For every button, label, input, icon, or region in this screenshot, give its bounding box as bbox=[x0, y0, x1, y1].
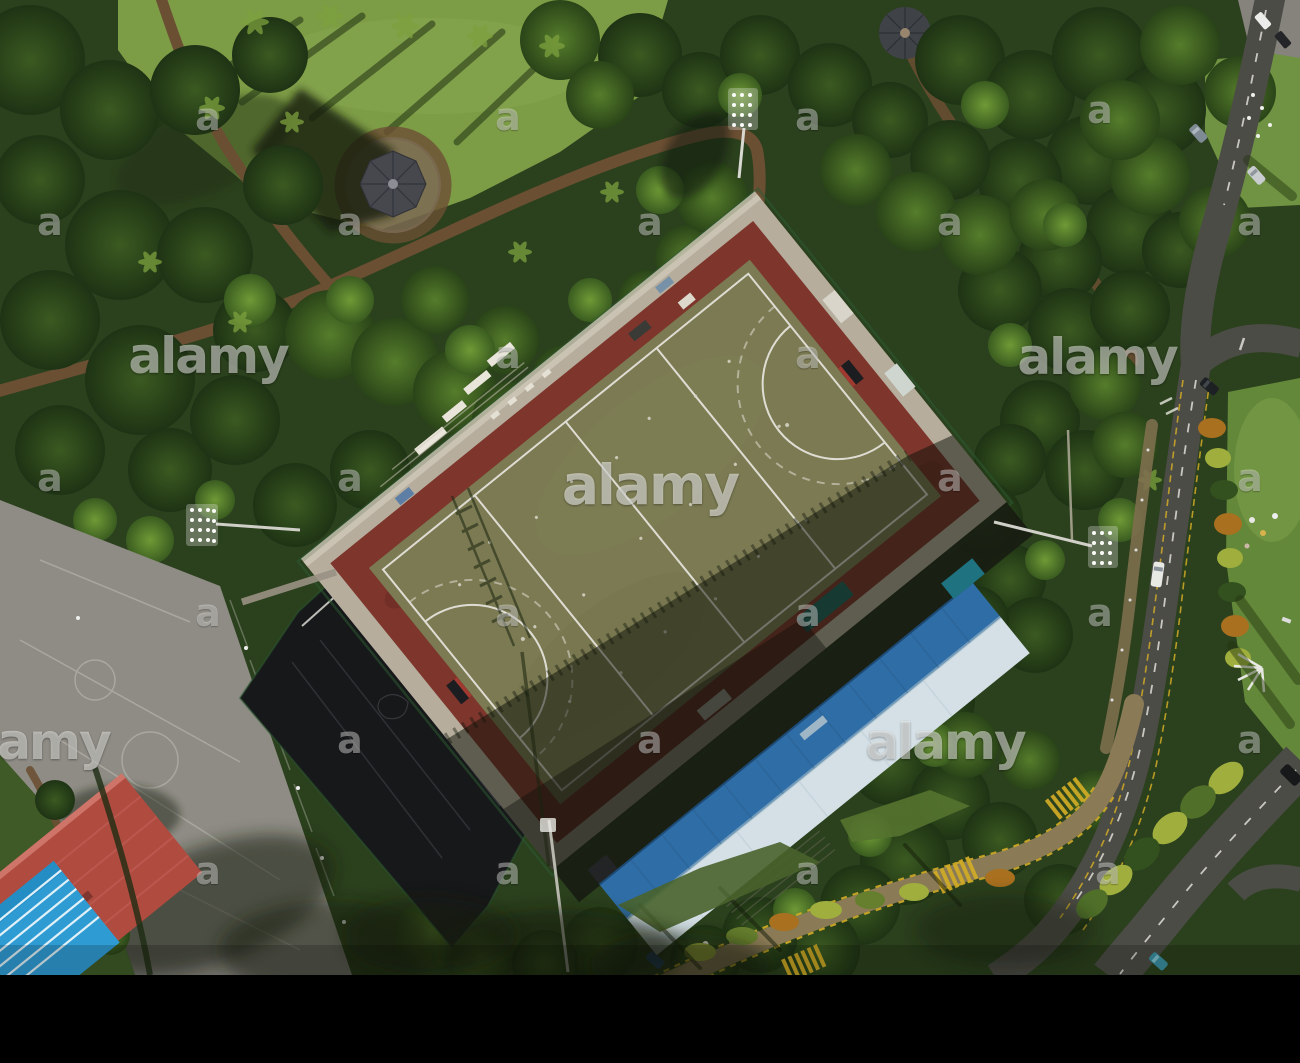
aerial-photo-hockey-field: alamy alamy alamy alamy alamy a a a a a … bbox=[0, 0, 1300, 975]
aerial-photo-scene bbox=[0, 0, 1300, 975]
footer-bar: alamy Image ID: 2CW629J www.alamy.com bbox=[0, 975, 1300, 1063]
alamy-stock-photo-page: alamy alamy alamy alamy alamy a a a a a … bbox=[0, 0, 1300, 1063]
